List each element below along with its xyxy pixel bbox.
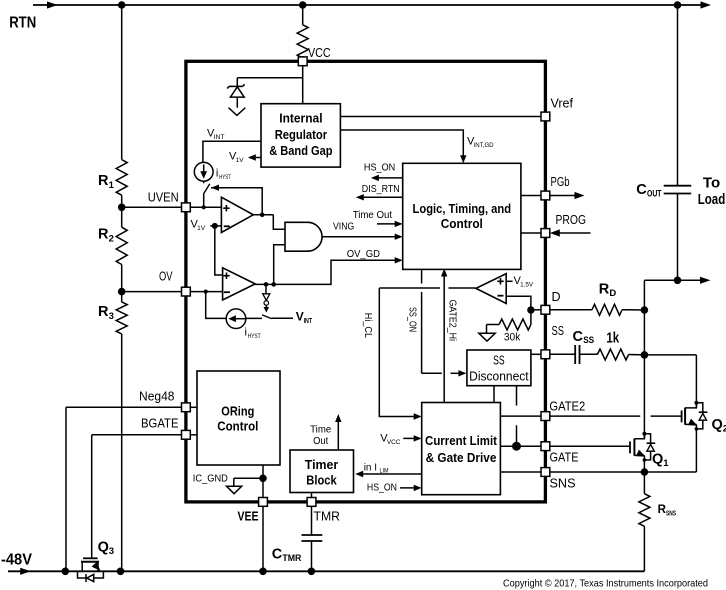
- svg-text:Current Limit: Current Limit: [425, 434, 498, 448]
- svg-text:Time: Time: [310, 425, 332, 436]
- svg-text:i: i: [216, 168, 218, 180]
- svg-text:D: D: [552, 290, 561, 304]
- svg-text:D: D: [609, 288, 616, 299]
- svg-text:30k: 30k: [504, 332, 521, 344]
- svg-text:Regulator: Regulator: [275, 128, 328, 142]
- svg-text:VCC: VCC: [308, 46, 331, 60]
- svg-text:SS: SS: [583, 335, 594, 345]
- svg-text:SS: SS: [493, 354, 505, 368]
- svg-text:SNS: SNS: [666, 511, 676, 518]
- svg-text:SS_ON: SS_ON: [407, 307, 418, 332]
- svg-text:C: C: [272, 546, 283, 562]
- svg-text:SS: SS: [552, 324, 565, 338]
- svg-text:3: 3: [109, 546, 114, 557]
- svg-text:-48V: -48V: [1, 552, 33, 569]
- svg-text:OV_GD: OV_GD: [347, 249, 380, 260]
- svg-text:VCC: VCC: [387, 439, 401, 446]
- svg-text:VEE: VEE: [238, 509, 259, 523]
- svg-text:Vref: Vref: [551, 97, 574, 111]
- svg-text:Q: Q: [98, 540, 109, 556]
- svg-text:To: To: [703, 174, 720, 191]
- svg-text:Neg48: Neg48: [139, 390, 175, 404]
- svg-text:Hi_CL: Hi_CL: [362, 313, 373, 339]
- svg-text:Block: Block: [306, 473, 337, 487]
- svg-text:INT,GD: INT,GD: [474, 142, 494, 149]
- svg-text:TMR: TMR: [282, 553, 301, 563]
- svg-text:SNS: SNS: [550, 477, 576, 491]
- svg-text:& Band Gap: & Band Gap: [269, 144, 333, 158]
- svg-text:R: R: [98, 304, 109, 320]
- svg-text:1: 1: [109, 180, 115, 191]
- svg-text:HYST: HYST: [248, 333, 261, 340]
- svg-text:ORing: ORing: [221, 404, 254, 418]
- svg-text:HS_ON: HS_ON: [364, 163, 395, 174]
- svg-text:Internal: Internal: [279, 112, 322, 126]
- svg-text:VING: VING: [333, 222, 354, 233]
- svg-text:1V: 1V: [197, 225, 206, 232]
- svg-text:Time Out: Time Out: [353, 210, 393, 221]
- svg-text:OUT: OUT: [647, 189, 662, 199]
- svg-text:& Gate Drive: & Gate Drive: [426, 451, 497, 465]
- svg-text:i: i: [245, 327, 247, 339]
- svg-text:Q: Q: [712, 417, 723, 433]
- svg-text:RTN: RTN: [9, 14, 36, 31]
- svg-text:1.5V: 1.5V: [520, 282, 534, 289]
- svg-text:Logic, Timing, and: Logic, Timing, and: [413, 202, 512, 216]
- svg-text:R: R: [599, 282, 610, 298]
- svg-text:Timer: Timer: [305, 458, 339, 472]
- svg-text:Load: Load: [698, 191, 726, 208]
- svg-text:LIM: LIM: [380, 468, 389, 475]
- svg-text:R: R: [98, 173, 109, 189]
- svg-text:INT: INT: [214, 134, 225, 141]
- svg-text:Q: Q: [652, 452, 663, 468]
- svg-text:IC_GND: IC_GND: [193, 474, 228, 485]
- svg-text:HS_ON: HS_ON: [367, 483, 397, 494]
- svg-text:GATE2: GATE2: [549, 399, 585, 413]
- svg-text:INT: INT: [304, 318, 313, 325]
- svg-text:UVEN: UVEN: [148, 190, 179, 204]
- svg-text:PROG: PROG: [556, 213, 587, 227]
- svg-text:TMR: TMR: [314, 509, 341, 523]
- svg-text:C: C: [636, 182, 647, 198]
- svg-text:Control: Control: [217, 420, 258, 434]
- svg-text:GATE2_Hi: GATE2_Hi: [447, 299, 458, 341]
- svg-text:1V: 1V: [236, 157, 245, 164]
- svg-text:C: C: [573, 329, 584, 345]
- svg-text:1: 1: [663, 458, 669, 469]
- svg-text:Copyright © 2017, Texas Instru: Copyright © 2017, Texas Instruments Inco…: [503, 578, 708, 590]
- svg-text:Control: Control: [441, 217, 483, 231]
- svg-text:in I: in I: [364, 463, 377, 474]
- svg-text:PGb: PGb: [551, 175, 570, 189]
- svg-text:HYST: HYST: [219, 174, 231, 181]
- svg-text:DIS_RTN: DIS_RTN: [362, 184, 400, 195]
- svg-text:GATE: GATE: [550, 451, 579, 465]
- svg-text:V: V: [296, 310, 304, 324]
- svg-text:OV: OV: [159, 270, 173, 284]
- svg-text:BGATE: BGATE: [141, 416, 179, 430]
- svg-text:Out: Out: [313, 436, 328, 447]
- svg-text:1k: 1k: [606, 331, 620, 347]
- svg-text:2: 2: [109, 234, 114, 245]
- svg-text:Disconnect: Disconnect: [469, 369, 529, 383]
- svg-text:R: R: [98, 227, 109, 243]
- svg-text:3: 3: [109, 311, 114, 322]
